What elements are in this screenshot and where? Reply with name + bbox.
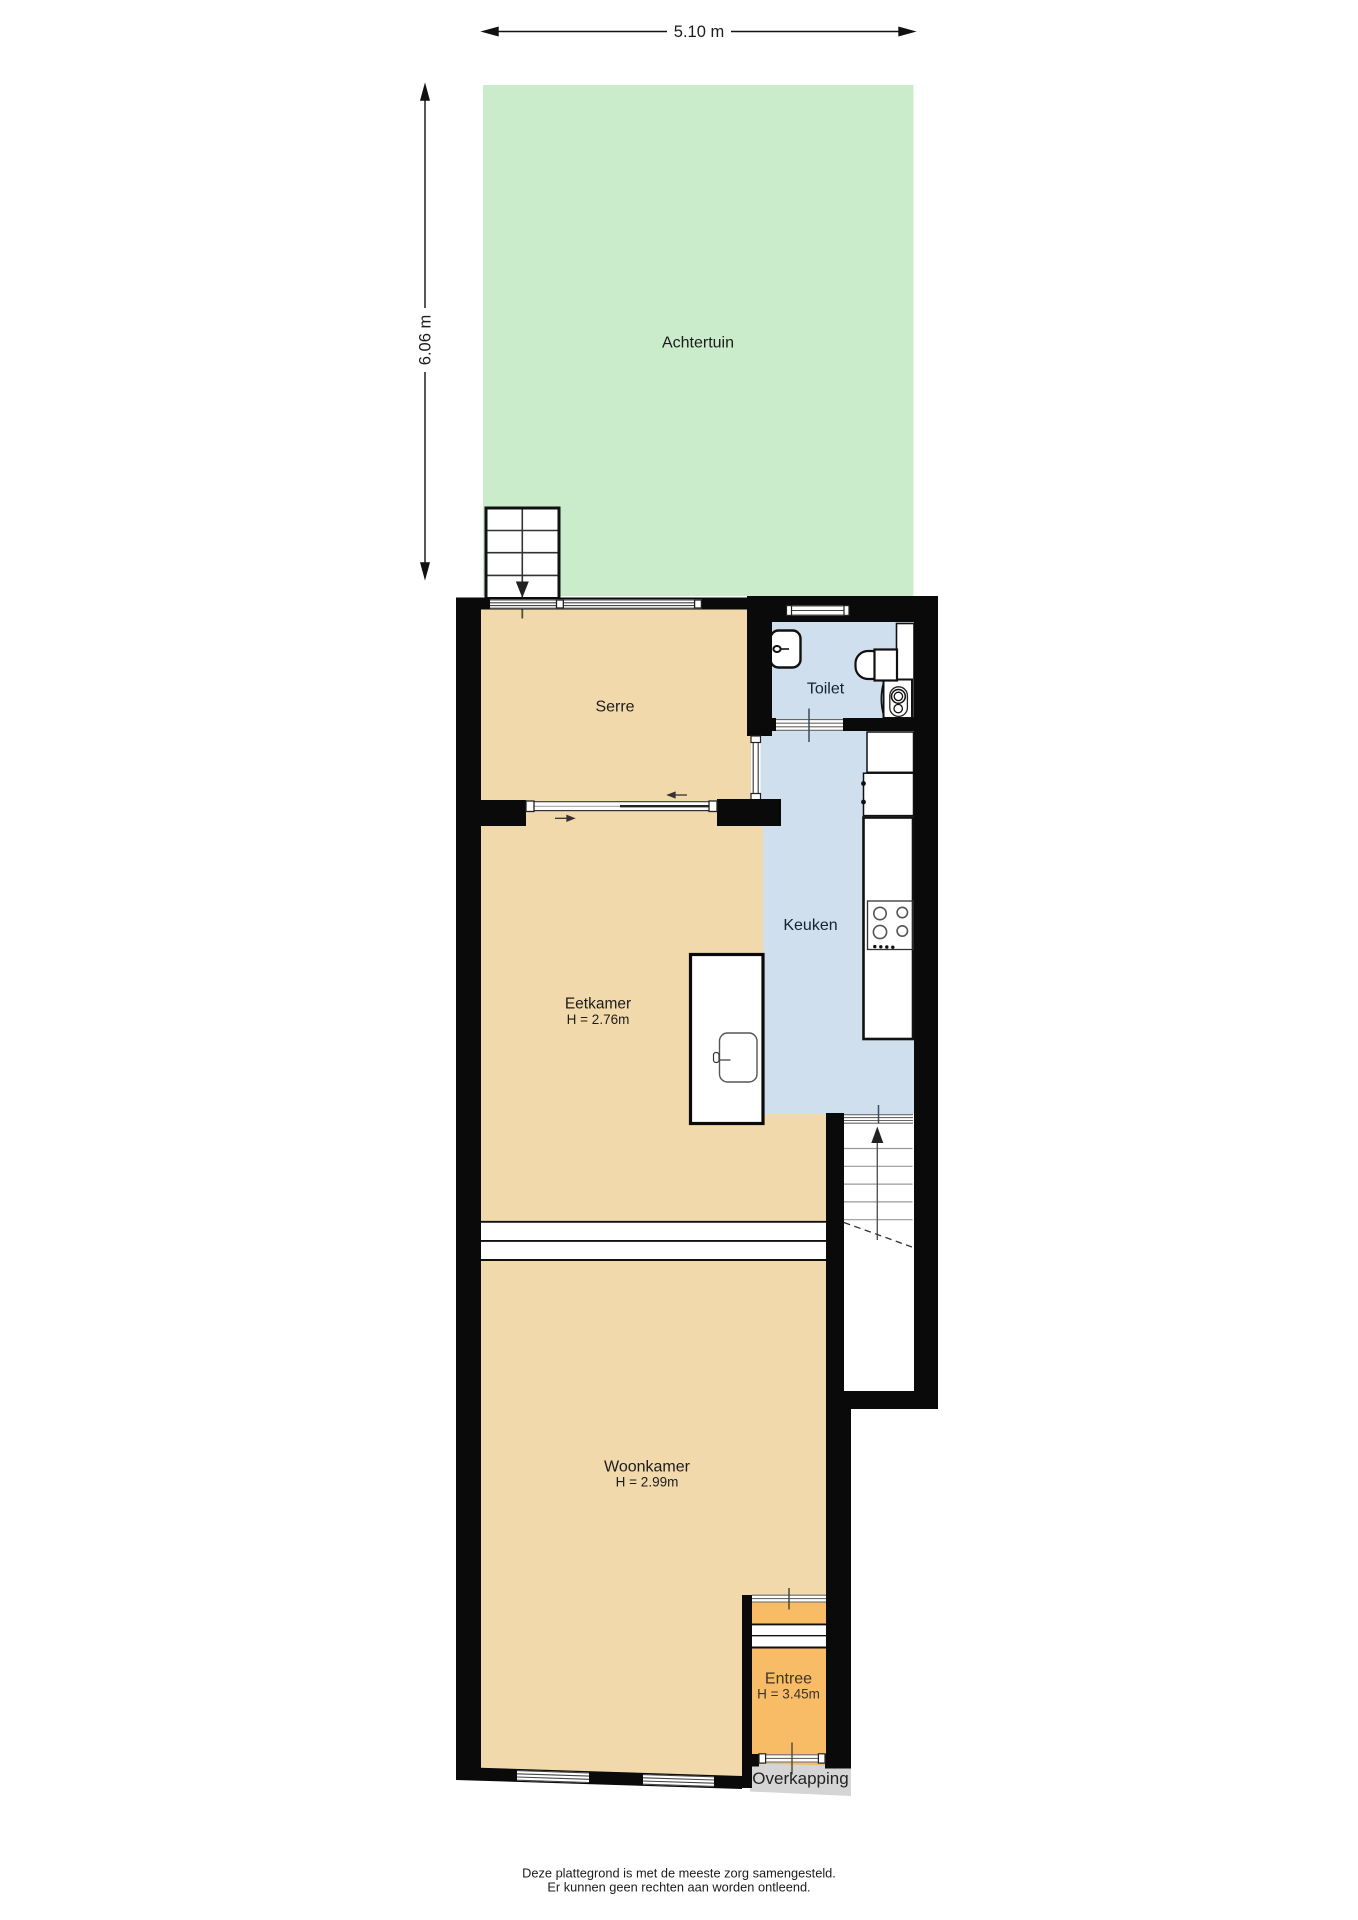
svg-text:Achtertuin: Achtertuin [662, 335, 734, 352]
svg-text:Deze plattegrond is met de mee: Deze plattegrond is met de meeste zorg s… [522, 1866, 836, 1881]
svg-text:5.10 m: 5.10 m [674, 23, 724, 41]
svg-text:Keuken: Keuken [783, 917, 837, 934]
svg-text:Er kunnen geen rechten aan wor: Er kunnen geen rechten aan worden ontlee… [547, 1880, 810, 1895]
svg-text:Overkapping: Overkapping [752, 1769, 848, 1788]
svg-text:Serre: Serre [595, 699, 634, 716]
svg-text:Eetkamer: Eetkamer [565, 996, 631, 1013]
svg-text:Toilet: Toilet [807, 681, 845, 698]
svg-text:Woonkamer: Woonkamer [604, 1459, 691, 1476]
svg-text:H = 3.45m: H = 3.45m [757, 1687, 820, 1702]
svg-text:Entree: Entree [765, 1671, 812, 1688]
svg-text:6.06 m: 6.06 m [417, 315, 435, 365]
svg-text:H = 2.99m: H = 2.99m [616, 1475, 679, 1490]
svg-text:H = 2.76m: H = 2.76m [567, 1012, 630, 1027]
